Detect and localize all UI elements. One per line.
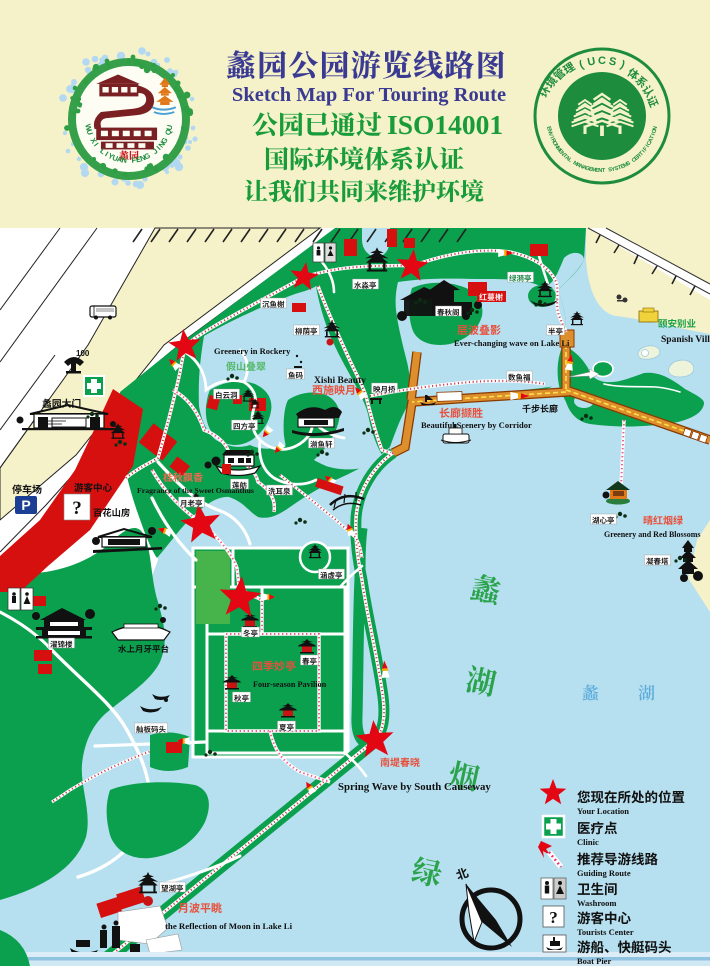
svg-text:C: C [598,55,606,67]
svg-text:Your Location: Your Location [577,806,629,816]
svg-text:?: ? [549,908,558,927]
svg-text:Beautiful Scenery by Corridor: Beautiful Scenery by Corridor [421,420,532,430]
svg-text:P: P [21,497,30,513]
svg-text:Fragrance of the Sweet Osmanth: Fragrance of the Sweet Osmanthus [137,486,254,495]
svg-text:Spanish Villa: Spanish Villa [661,335,710,345]
svg-text:Guiding Route: Guiding Route [577,868,631,878]
svg-text:?: ? [72,498,82,519]
svg-text:Four-season Pavilion: Four-season Pavilion [253,680,327,689]
svg-text:100: 100 [76,349,90,358]
svg-text:Greenery in Rockery: Greenery in Rockery [214,346,291,356]
svg-text:Greenery and Red Blossoms: Greenery and Red Blossoms [604,530,701,539]
svg-text:Spring Wave by South Causeway: Spring Wave by South Causeway [338,781,491,793]
svg-text:Ever-changing wave on Lake Li: Ever-changing wave on Lake Li [454,338,570,348]
svg-text:the Reflection of Moon in Lake: the Reflection of Moon in Lake Li [165,921,293,931]
svg-text:Boat Pier: Boat Pier [577,956,611,966]
svg-text:Xishi Beauty: Xishi Beauty [314,376,366,386]
svg-text:Clinic: Clinic [577,837,599,847]
svg-text:N: N [121,155,127,165]
svg-text:ISO14001: ISO14001 [387,109,503,140]
svg-text:Tourists Center: Tourists Center [577,927,634,937]
svg-text:Washroom: Washroom [577,898,617,908]
svg-text:Sketch Map For Touring Route: Sketch Map For Touring Route [232,84,506,106]
